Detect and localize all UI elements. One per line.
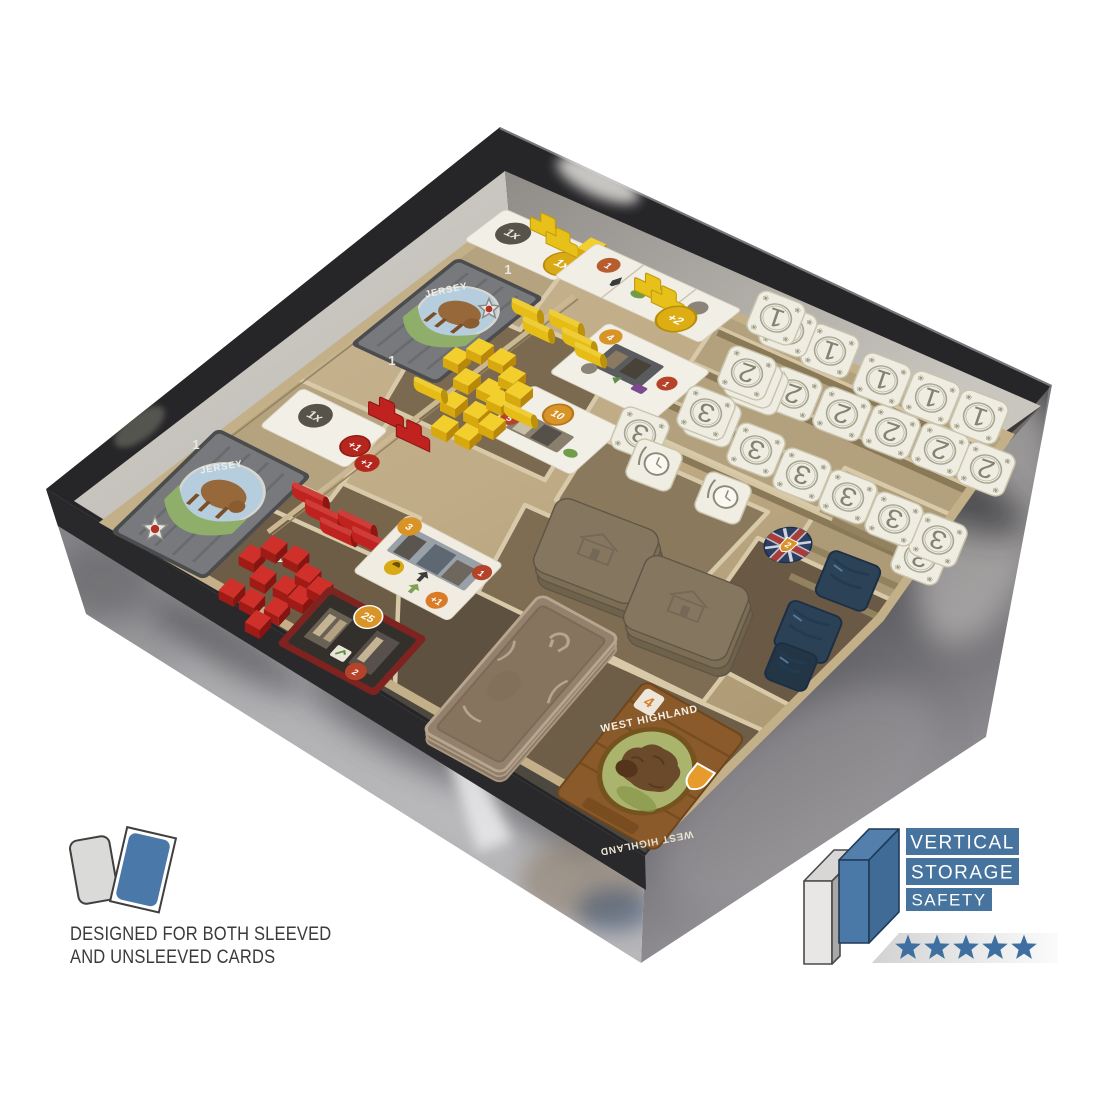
svg-text:STORAGE: STORAGE xyxy=(911,862,1014,883)
svg-text:DESIGNED FOR BOTH SLEEVED: DESIGNED FOR BOTH SLEEVED xyxy=(70,923,331,944)
svg-text:1: 1 xyxy=(192,437,199,452)
svg-text:1: 1 xyxy=(388,353,395,368)
svg-text:SAFETY: SAFETY xyxy=(911,891,986,910)
svg-text:AND UNSLEEVED CARDS: AND UNSLEEVED CARDS xyxy=(70,946,275,967)
svg-text:1: 1 xyxy=(504,262,511,277)
svg-text:VERTICAL: VERTICAL xyxy=(910,832,1015,853)
